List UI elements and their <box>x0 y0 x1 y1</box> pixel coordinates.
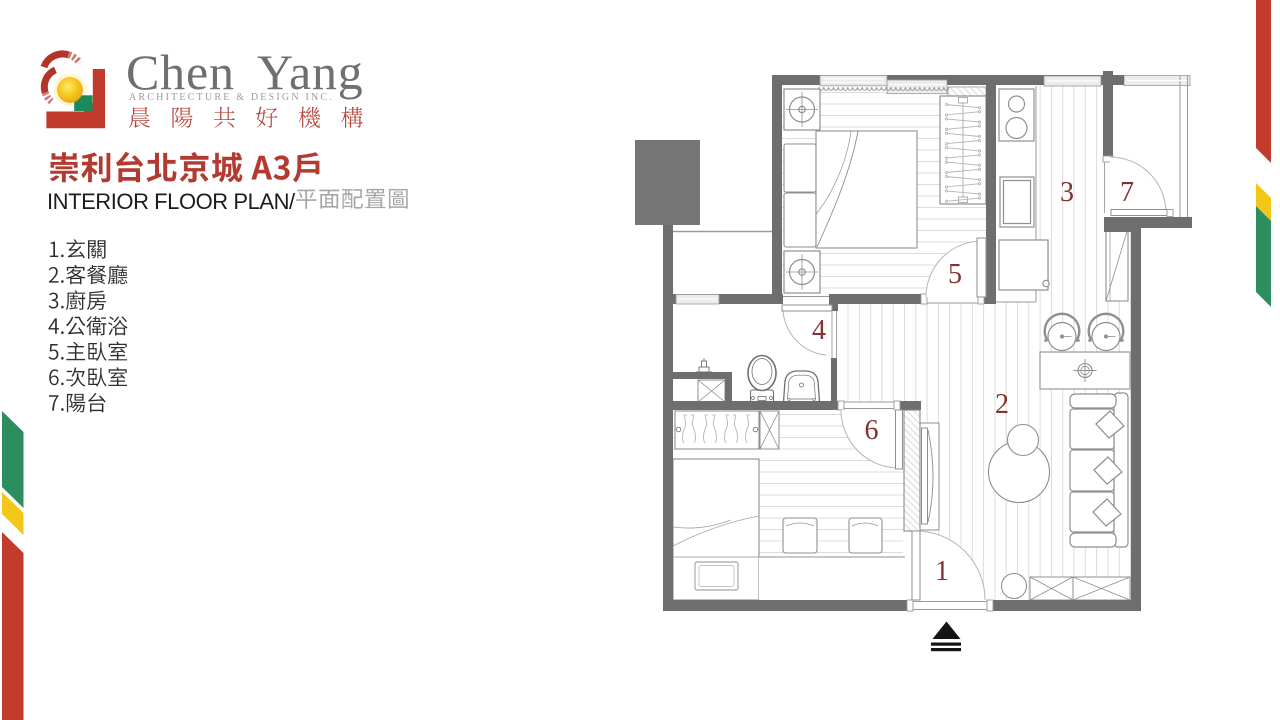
svg-text:6: 6 <box>865 415 879 446</box>
svg-text:2: 2 <box>995 389 1009 420</box>
svg-text:3: 3 <box>1060 177 1074 208</box>
svg-text:1: 1 <box>935 556 949 587</box>
svg-text:4: 4 <box>812 315 826 346</box>
svg-text:5: 5 <box>948 259 962 290</box>
svg-text:7: 7 <box>1120 177 1134 208</box>
